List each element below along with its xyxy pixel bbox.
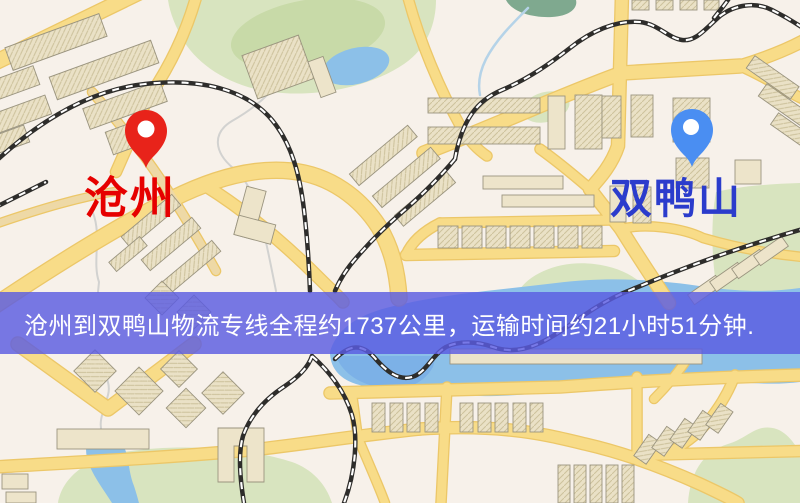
destination-pin-icon[interactable] bbox=[670, 108, 714, 168]
destination-label: 双鸭山 bbox=[610, 178, 742, 220]
origin-pin-icon[interactable] bbox=[124, 109, 168, 169]
map-canvas[interactable] bbox=[0, 0, 800, 503]
map-view[interactable]: 沧州 双鸭山 沧州到双鸭山物流专线全程约1737公里，运输时间约21小时51分钟… bbox=[0, 0, 800, 503]
origin-label: 沧州 bbox=[84, 177, 176, 221]
route-info-banner: 沧州到双鸭山物流专线全程约1737公里，运输时间约21小时51分钟. bbox=[0, 292, 800, 354]
route-info-text: 沧州到双鸭山物流专线全程约1737公里，运输时间约21小时51分钟. bbox=[24, 306, 754, 341]
